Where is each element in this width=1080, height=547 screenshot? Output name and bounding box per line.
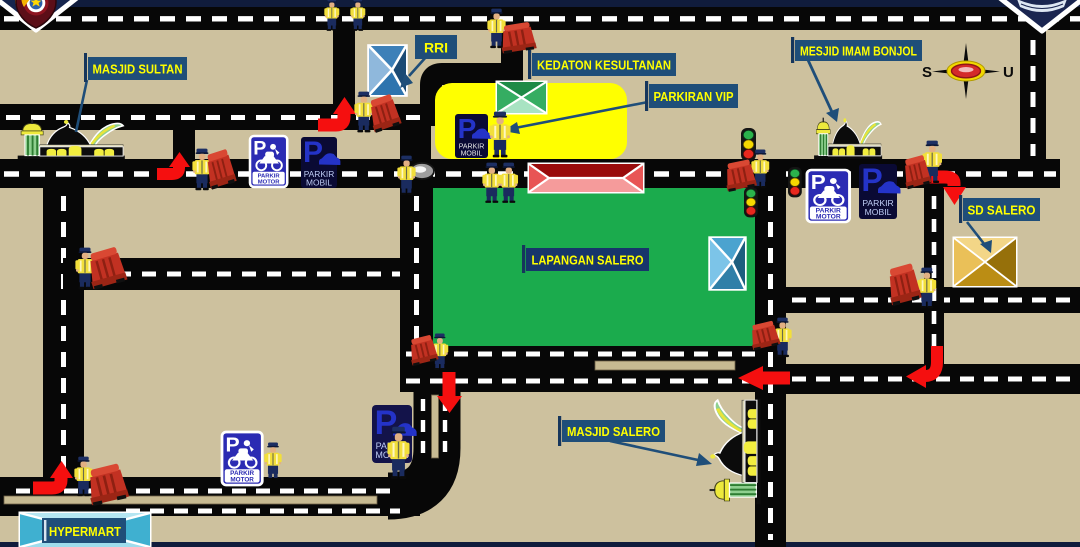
svg-text:P: P: [375, 404, 398, 442]
svg-text:U: U: [1003, 64, 1014, 81]
svg-text:MOBIL: MOBIL: [461, 151, 483, 158]
svg-text:MOBIL: MOBIL: [306, 178, 332, 188]
svg-text:MOBIL: MOBIL: [865, 207, 892, 217]
svg-text:MESJID IMAM BONJOL: MESJID IMAM BONJOL: [800, 45, 917, 59]
svg-text:MASJID SULTAN: MASJID SULTAN: [93, 62, 183, 77]
svg-text:SD SALERO: SD SALERO: [968, 203, 1036, 218]
svg-text:KEDATON KESULTANAN: KEDATON KESULTANAN: [537, 58, 671, 73]
svg-text:PARKIRAN VIP: PARKIRAN VIP: [654, 89, 734, 104]
svg-text:MASJID SALERO: MASJID SALERO: [567, 425, 660, 439]
svg-text:LAPANGAN SALERO: LAPANGAN SALERO: [532, 253, 644, 268]
svg-text:P: P: [458, 113, 477, 144]
svg-text:S: S: [922, 64, 932, 81]
svg-text:PARKIR: PARKIR: [459, 144, 485, 151]
svg-text:HYPERMART: HYPERMART: [49, 524, 121, 539]
svg-text:RRI: RRI: [424, 40, 448, 56]
